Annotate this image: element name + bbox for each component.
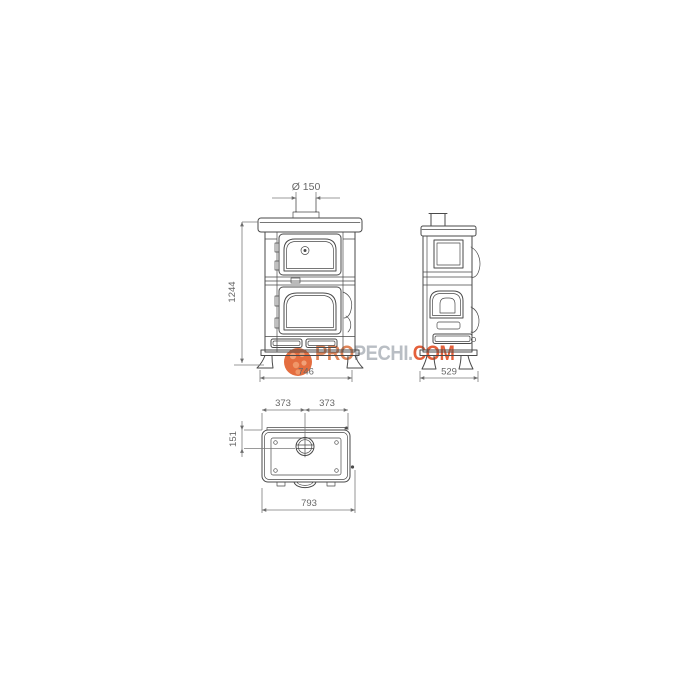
oven-door — [275, 234, 341, 275]
corner-screw — [274, 469, 278, 473]
side-base — [420, 350, 477, 356]
height-dimension: 1244 — [227, 222, 264, 365]
side-slot-small — [437, 322, 460, 329]
diagram-canvas: PROPECHI.COM — [0, 0, 700, 700]
front-base — [261, 350, 359, 356]
flue-pipe — [293, 198, 319, 218]
overall-width-dimension: 793 — [262, 470, 355, 513]
corner-screw — [274, 441, 278, 445]
side-oven-window — [434, 240, 463, 268]
flue-diameter-dimension: Ø 150 — [272, 181, 340, 211]
left-half-label: 373 — [275, 398, 291, 409]
side-front-leg — [459, 356, 473, 370]
front-tab-left — [277, 482, 285, 486]
flue-offset-label: 151 — [228, 431, 239, 447]
side-flue-pipe — [429, 214, 447, 227]
corner-screw — [335, 469, 339, 473]
front-top-plate — [258, 218, 362, 232]
side-slot-large — [433, 334, 472, 344]
right-half-label: 373 — [319, 398, 335, 409]
front-width-label: 746 — [298, 367, 314, 378]
side-arched-panel — [430, 291, 463, 318]
front-left-leg — [257, 356, 273, 369]
side-top-plate — [421, 226, 476, 236]
overall-width-label: 793 — [301, 498, 317, 509]
height-label: 1244 — [227, 281, 238, 302]
flue-opening — [296, 436, 314, 457]
ash-drawer — [265, 337, 355, 348]
front-right-leg — [347, 356, 363, 369]
front-view — [257, 198, 363, 368]
front-divider-band — [265, 277, 355, 285]
firebox-door — [275, 287, 341, 334]
top-view — [262, 427, 354, 488]
depth-label: 529 — [441, 367, 457, 378]
side-view — [420, 214, 480, 370]
side-back-leg — [422, 356, 436, 370]
front-tab-right — [327, 482, 335, 486]
front-width-dimension: 746 — [260, 367, 352, 383]
corner-screw — [335, 441, 339, 445]
door-handle — [343, 292, 352, 332]
stove-technical-drawing: Ø 150 1244 746 — [0, 0, 700, 700]
side-body — [423, 236, 472, 352]
top-recess — [271, 438, 341, 475]
flue-diameter-label: Ø 150 — [292, 181, 321, 193]
